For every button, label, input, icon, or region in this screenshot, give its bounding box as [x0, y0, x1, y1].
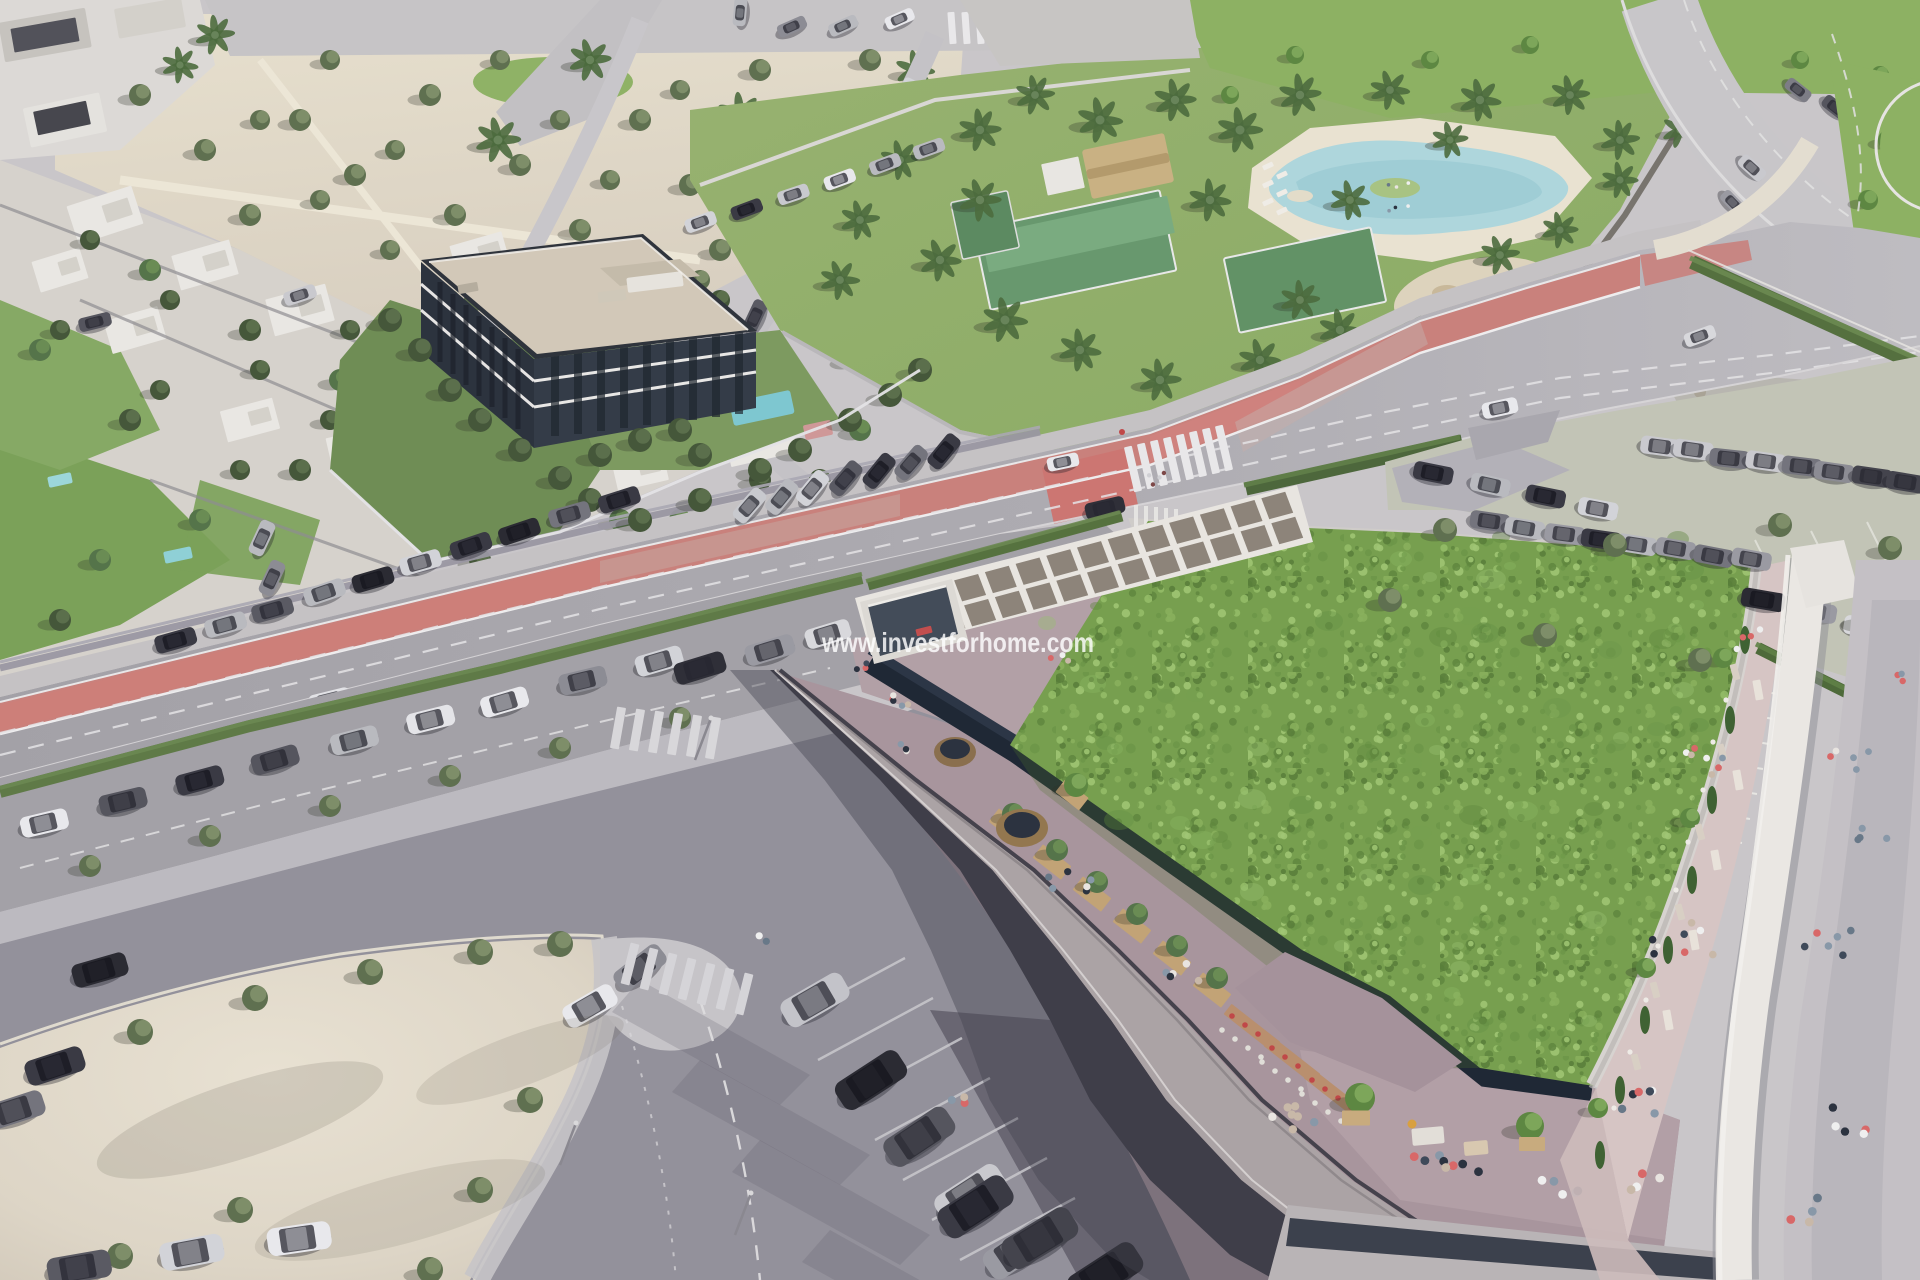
svg-text:www.investforhome.com: www.investforhome.com [821, 627, 1094, 658]
